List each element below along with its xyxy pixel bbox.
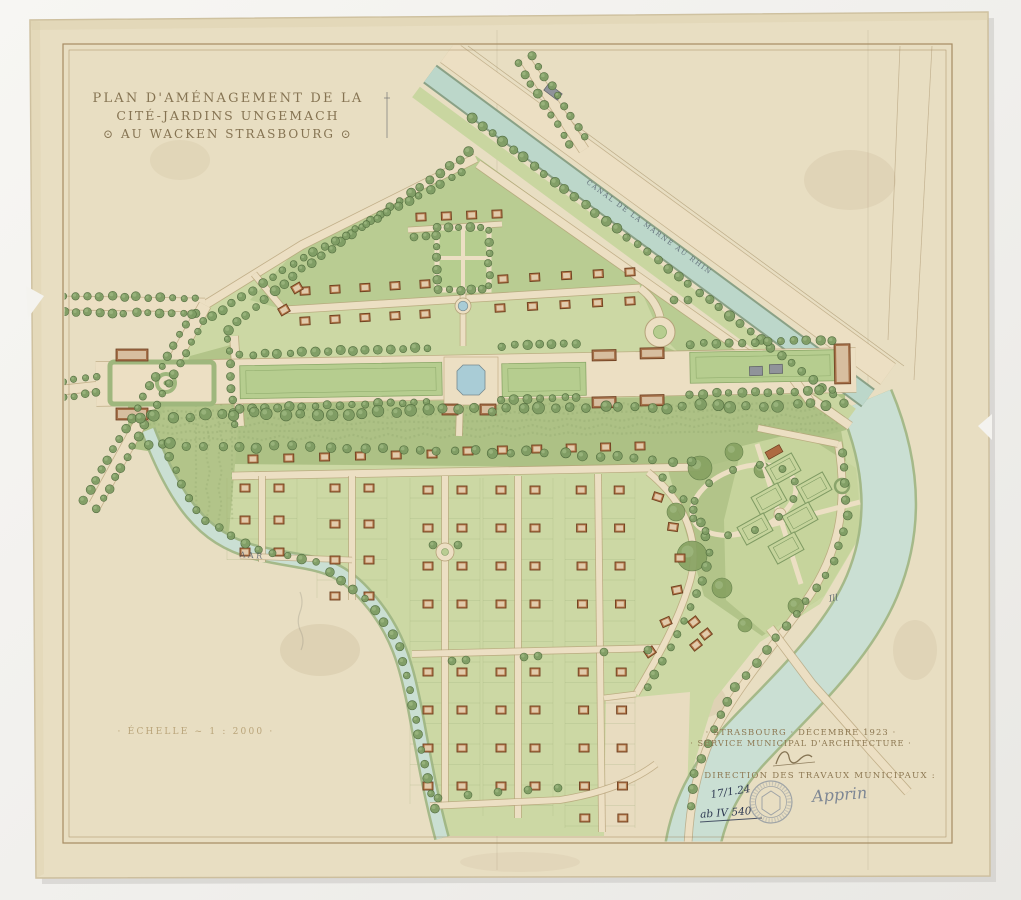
tree-highlight [183, 443, 187, 447]
tree-highlight [437, 170, 441, 174]
tree-highlight [679, 403, 683, 407]
tree-highlight [537, 341, 540, 344]
tree-highlight [439, 405, 443, 409]
tree-highlight [286, 403, 290, 407]
garden-pavilion [640, 348, 664, 359]
tree-highlight [784, 623, 788, 627]
tree-highlight [203, 518, 206, 521]
tree-highlight [93, 506, 96, 509]
house [593, 269, 603, 278]
tree-highlight [234, 319, 238, 323]
house-roof [616, 525, 623, 530]
tree-highlight [490, 131, 493, 134]
tree-highlight [583, 405, 587, 409]
house [577, 562, 587, 570]
tree-highlight [841, 465, 844, 468]
tree-highlight [732, 684, 736, 688]
tree-highlight [433, 232, 437, 236]
house-roof [532, 669, 539, 674]
house [577, 600, 587, 608]
tree-highlight [220, 444, 224, 448]
tree-highlight [123, 425, 127, 429]
tree-highlight [645, 685, 648, 688]
tree-highlight [416, 193, 419, 196]
tree-highlight [146, 296, 149, 299]
tree-highlight [135, 406, 138, 409]
tree-highlight [691, 771, 694, 774]
tree-highlight [582, 134, 585, 137]
tree-clump [667, 503, 685, 521]
tree-highlight [201, 318, 204, 321]
house [561, 271, 571, 280]
house [601, 443, 611, 451]
tree-highlight [184, 351, 187, 354]
tree-highlight [726, 312, 730, 316]
tree-highlight [562, 104, 565, 107]
tree-highlight [228, 386, 231, 389]
tree-highlight [555, 122, 558, 125]
house [496, 706, 506, 714]
tree-highlight [810, 377, 814, 381]
tree-highlight [726, 340, 730, 344]
house-roof [331, 286, 338, 292]
tree-highlight [520, 153, 524, 157]
tree-highlight [414, 717, 417, 720]
tree-highlight [568, 113, 571, 116]
house [330, 285, 340, 294]
tree-highlight [463, 657, 466, 660]
tree-highlight [298, 556, 302, 560]
tree-highlight [718, 712, 721, 715]
house-roof [626, 298, 633, 304]
tree-highlight [400, 401, 403, 404]
house [530, 668, 540, 676]
house [457, 486, 467, 494]
tree-highlight [88, 486, 92, 490]
tree-highlight [310, 249, 314, 253]
tree-highlight [262, 350, 265, 353]
tree-highlight [486, 261, 489, 264]
tree-highlight [555, 93, 558, 96]
tree-highlight [789, 360, 792, 363]
house [330, 556, 340, 564]
house-roof [465, 448, 472, 453]
house [457, 562, 467, 570]
tree-highlight [687, 342, 690, 345]
tree-highlight [516, 61, 519, 64]
tree-highlight [512, 342, 515, 345]
tree-highlight [374, 407, 379, 412]
tree-highlight [698, 519, 702, 523]
tree-highlight [703, 528, 706, 531]
tree-highlight [816, 387, 820, 391]
tree-highlight [319, 253, 322, 256]
tree-highlight [450, 175, 453, 178]
tree-highlight [271, 442, 275, 446]
house [635, 442, 645, 450]
tree-highlight [437, 181, 441, 185]
tree-highlight [109, 310, 113, 314]
tree-highlight [699, 578, 703, 582]
house [457, 600, 467, 608]
tree-highlight [254, 304, 257, 307]
tree-highlight [262, 410, 267, 415]
tree-highlight [353, 227, 356, 230]
garden-pavilion [592, 350, 616, 361]
house-roof [425, 601, 432, 606]
tree-highlight [458, 288, 462, 292]
mall-panel [502, 362, 587, 396]
tree-highlight [561, 341, 564, 344]
tree-highlight [731, 467, 734, 470]
tree-highlight [146, 310, 149, 313]
tree-highlight [409, 702, 413, 706]
house-roof [618, 669, 625, 674]
tree-highlight [541, 171, 544, 174]
house-roof [321, 454, 328, 459]
tree-highlight [227, 349, 230, 352]
tree-highlight [343, 233, 346, 236]
tree-highlight [282, 411, 287, 416]
house-roof [418, 214, 425, 219]
tree-highlight [236, 444, 240, 448]
tree-highlight [393, 409, 397, 413]
tree-highlight [434, 254, 438, 258]
tree-highlight [670, 459, 674, 463]
house-roof [459, 669, 466, 674]
credits-line1: · STRASBOURG · DÉCEMBRE 1923 · [706, 726, 897, 737]
tree-highlight [166, 453, 170, 457]
tree-highlight [129, 415, 133, 419]
pavilion-roof [642, 350, 662, 357]
tree-highlight [703, 563, 707, 567]
tree-highlight [615, 403, 619, 407]
tree-highlight [194, 508, 197, 511]
tree-highlight [571, 194, 575, 198]
tree-highlight [814, 585, 817, 588]
tree-highlight [765, 390, 768, 393]
tree-highlight [773, 402, 778, 407]
tree-highlight [455, 406, 459, 410]
house-roof [276, 517, 283, 522]
tree-highlight [830, 387, 833, 390]
tree-highlight [534, 404, 539, 409]
tree-highlight [299, 266, 302, 269]
house-roof [532, 487, 539, 492]
house-roof [332, 557, 339, 562]
tree-highlight [778, 389, 781, 392]
tree-highlight [528, 82, 531, 85]
tree-highlight [670, 487, 673, 490]
tree-highlight [508, 451, 511, 454]
tree-highlight [697, 400, 702, 405]
house-roof [366, 485, 373, 490]
house [300, 317, 310, 326]
tree-highlight [297, 411, 301, 415]
tree-highlight [562, 449, 566, 453]
tree-highlight [791, 496, 794, 499]
tree-highlight [136, 433, 140, 437]
approval-signature: Apprin [809, 783, 867, 806]
scanned-map-document: PLAN D'AMÉNAGEMENT DE LA CITÉ-JARDINS UN… [0, 0, 1021, 900]
tree-highlight [388, 400, 391, 403]
tree-highlight [841, 529, 844, 532]
tree-highlight [714, 401, 719, 406]
tree-highlight [726, 390, 729, 393]
tree-highlight [541, 450, 544, 453]
tree-highlight [614, 453, 618, 457]
house-roof [366, 557, 373, 562]
tree-highlight [660, 475, 663, 478]
house-roof [618, 707, 625, 712]
tree-highlight [372, 607, 376, 611]
house [592, 298, 602, 307]
tree-highlight [337, 347, 341, 351]
tree-highlight [573, 395, 576, 398]
garden-pavilion [116, 349, 148, 361]
house [615, 524, 625, 532]
tree-highlight [522, 72, 525, 75]
house [423, 562, 433, 570]
house-roof [242, 517, 249, 522]
tree-highlight [113, 474, 116, 477]
tree-highlight [761, 404, 765, 408]
tree-highlight [449, 658, 452, 661]
tree-highlight [681, 497, 684, 500]
tree-highlight [140, 394, 143, 397]
tree-highlight [228, 374, 231, 377]
house-roof [617, 601, 624, 606]
house-roof [498, 525, 505, 530]
tree-highlight [312, 348, 316, 352]
house [530, 524, 540, 532]
tree-highlight [137, 414, 141, 418]
tree-highlight [445, 224, 449, 228]
paper-stain [150, 140, 210, 180]
house-roof [498, 563, 505, 568]
mall-panel [240, 362, 443, 399]
grey-building-block [769, 364, 782, 373]
house [625, 268, 635, 277]
title-line1: PLAN D'AMÉNAGEMENT DE LA [93, 90, 364, 106]
tree-highlight [177, 332, 180, 335]
house [616, 668, 626, 676]
tree-highlight [553, 405, 557, 409]
house [248, 455, 258, 463]
tree-highlight [845, 512, 849, 516]
house [360, 283, 370, 292]
tree-highlight [549, 113, 552, 116]
tree-highlight [429, 791, 432, 794]
plan-svg: PLAN D'AMÉNAGEMENT DE LA CITÉ-JARDINS UN… [0, 0, 1021, 900]
tree-highlight [803, 337, 807, 341]
tree-highlight [471, 404, 475, 408]
tree-highlight [779, 353, 783, 357]
house-roof [494, 211, 501, 216]
tree-highlight [434, 266, 438, 270]
tree-highlight [707, 481, 710, 484]
tree-highlight [555, 785, 558, 788]
tree-highlight [532, 163, 536, 167]
tree-highlight [692, 498, 695, 501]
tree-highlight [716, 304, 719, 307]
house [496, 668, 506, 676]
tree-highlight [778, 338, 781, 341]
credits-line2: · SERVICE MUNICIPAL D'ARCHITECTURE · [690, 738, 912, 748]
tree-highlight [467, 224, 471, 228]
house-roof [498, 669, 505, 674]
tree-highlight [676, 273, 680, 277]
tree-highlight [805, 387, 809, 391]
tree-highlight [603, 218, 607, 222]
house [457, 782, 467, 790]
tree-highlight [822, 402, 826, 406]
tree-highlight [250, 288, 254, 292]
tree-highlight [829, 338, 833, 342]
tree-highlight [691, 507, 694, 510]
tree-highlight [401, 447, 405, 451]
tree-highlight [150, 412, 155, 417]
tree-highlight [457, 157, 460, 160]
house [530, 600, 540, 608]
tree-highlight [650, 405, 654, 409]
house [416, 213, 426, 221]
tree-highlight [757, 462, 760, 465]
tree-highlight [375, 400, 379, 404]
tree-highlight [529, 53, 533, 57]
tree-highlight [561, 186, 565, 190]
house-roof [366, 521, 373, 526]
house-roof [669, 524, 676, 530]
tree-highlight [390, 631, 394, 635]
house [240, 484, 250, 492]
tree-highlight [186, 495, 189, 498]
tree-highlight [178, 481, 181, 484]
tree-highlight [125, 455, 128, 458]
tree-highlight [479, 123, 483, 127]
tree-highlight [592, 210, 596, 214]
tree-highlight [85, 309, 88, 312]
house [240, 516, 250, 524]
tree-highlight [499, 344, 502, 347]
pavilion-roof [118, 351, 146, 359]
tree-highlight [73, 294, 76, 297]
house-roof [468, 212, 475, 217]
paper-stain [804, 150, 896, 210]
tree-highlight [726, 403, 731, 408]
house-roof [421, 311, 428, 317]
tree-highlight [424, 775, 428, 779]
tree-highlight [110, 447, 113, 450]
tree-highlight [739, 340, 742, 343]
tree-highlight [256, 547, 259, 550]
house [364, 556, 374, 564]
tree-highlight [549, 83, 552, 86]
plaza-lawn [654, 326, 667, 339]
tree-highlight [714, 389, 718, 393]
house [615, 600, 625, 608]
tree-highlight [456, 225, 459, 228]
house-roof [498, 745, 505, 750]
house [496, 524, 506, 532]
house-roof [276, 485, 283, 490]
tree-highlight [688, 605, 691, 608]
tree-highlight [432, 805, 436, 809]
tree-highlight [104, 457, 108, 461]
house [423, 706, 433, 714]
house-roof [332, 485, 339, 490]
tree-highlight [425, 346, 428, 349]
tree-highlight [251, 353, 254, 356]
tree-highlight [228, 361, 231, 364]
tree-highlight [122, 294, 125, 297]
tree-highlight [380, 445, 384, 449]
house-roof [619, 745, 626, 750]
tree-highlight [737, 321, 740, 324]
house-roof [561, 302, 568, 308]
tree-clump-light [670, 506, 677, 513]
tree-highlight [332, 238, 336, 242]
house-roof [425, 563, 432, 568]
tree-highlight [563, 395, 566, 398]
house-roof [619, 783, 626, 788]
tree-highlight [499, 138, 503, 142]
tree-highlight [338, 577, 342, 581]
tree-highlight [146, 442, 150, 446]
tree-highlight [525, 787, 528, 790]
house [615, 562, 625, 570]
tree-highlight [487, 273, 490, 276]
house [364, 520, 374, 528]
tree-highlight [645, 249, 648, 252]
tree-highlight [387, 204, 390, 207]
tree-highlight [468, 286, 472, 290]
house [423, 486, 433, 494]
tree-highlight [217, 525, 220, 528]
tree-highlight [280, 268, 283, 271]
house-roof [285, 455, 292, 460]
tree-highlight [656, 257, 659, 260]
tree-highlight [752, 340, 755, 343]
house [420, 310, 430, 319]
tree-highlight [473, 447, 477, 451]
tree-highlight [166, 439, 171, 444]
tree-highlight [567, 142, 570, 145]
house [530, 744, 540, 752]
tree-highlight [694, 591, 697, 594]
tree-highlight [189, 311, 193, 315]
tree-highlight [375, 216, 378, 219]
house-roof [332, 593, 339, 598]
tree-highlight [602, 402, 606, 406]
house-roof [531, 274, 538, 280]
tree-highlight [73, 310, 76, 313]
tree-highlight [422, 761, 425, 764]
tree-highlight [219, 411, 223, 415]
tree-highlight [428, 187, 432, 191]
house-roof [443, 213, 450, 218]
title-line3: ⊙ AU WACKEN STRASBOURG ⊙ [103, 127, 353, 141]
tree-highlight [225, 337, 228, 340]
house [617, 744, 627, 752]
tree-highlight [552, 179, 556, 183]
tree-highlight [251, 408, 255, 412]
house-roof [459, 707, 466, 712]
tree-highlight [668, 645, 671, 648]
river-aar-label: AAR [238, 550, 265, 561]
house [527, 302, 537, 311]
house [390, 281, 400, 290]
